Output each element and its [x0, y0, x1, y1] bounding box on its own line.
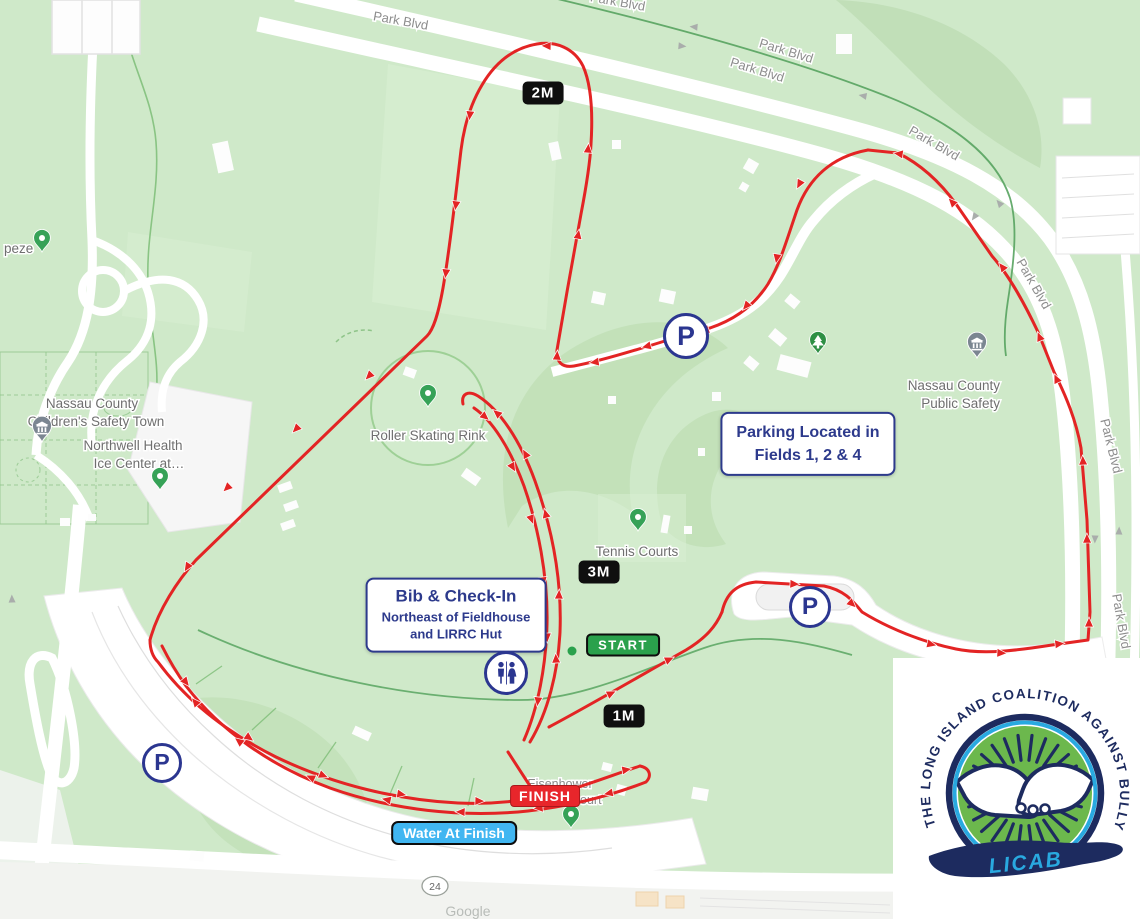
map-label: Google	[445, 903, 490, 919]
map-rect	[608, 396, 616, 404]
map-rect	[784, 293, 800, 309]
map-rect	[212, 141, 234, 174]
map-rect	[768, 328, 787, 347]
map-label: Nassau County	[46, 396, 139, 411]
start-dot	[568, 647, 577, 656]
bib-checkin-line3: and LIRRC Hut	[382, 627, 531, 644]
bib-checkin-line2: Northeast of Fieldhouse	[382, 610, 531, 627]
route-arrow	[793, 178, 806, 191]
map-label: Roller Skating Rink	[371, 428, 486, 443]
green-map-pin	[563, 805, 580, 828]
course-route-line	[508, 752, 530, 786]
map-rect	[88, 514, 96, 521]
mile-marker-2: 2M	[523, 82, 564, 105]
parking-info-box: Parking Located in Fields 1, 2 & 4	[720, 412, 895, 476]
route-arrow	[362, 370, 375, 383]
road-direction-arrow	[8, 594, 15, 602]
tree-map-pin	[810, 331, 827, 354]
map-label: peze	[4, 241, 33, 256]
restrooms-icon	[484, 651, 528, 695]
map-rect	[1063, 98, 1091, 124]
map-rect	[612, 140, 621, 149]
road-direction-arrow	[1115, 526, 1122, 534]
map-rect	[739, 182, 750, 193]
map-label: Park Blvd	[589, 0, 646, 14]
parking-icon: P	[789, 586, 831, 628]
route-arrow	[573, 228, 584, 239]
parking-info-line2: Fields 1, 2 & 4	[736, 444, 879, 467]
mile-marker-3: 3M	[579, 561, 620, 584]
road-direction-arrow	[678, 42, 687, 50]
museum-map-pin	[967, 332, 986, 358]
route-arrow	[289, 423, 302, 436]
map-rect	[461, 468, 481, 487]
parking-icon: P	[142, 743, 182, 783]
route-arrow	[1078, 455, 1088, 465]
map-path	[336, 330, 374, 342]
map-rect	[743, 355, 759, 371]
map-path	[36, 0, 96, 455]
map-rect	[352, 726, 372, 742]
map-rect	[60, 518, 70, 526]
map-rect	[283, 500, 299, 512]
route-arrow	[892, 149, 903, 159]
parking-info-line1: Parking Located in	[736, 421, 879, 444]
map-rect	[1056, 156, 1140, 254]
map-rect	[666, 896, 684, 908]
route-arrow	[554, 589, 563, 599]
map-label: Nassau County	[908, 378, 1001, 393]
bib-checkin-box: Bib & Check-In Northeast of Fieldhouse a…	[366, 578, 547, 653]
road-direction-arrow	[858, 92, 867, 100]
map-circle	[16, 458, 40, 482]
map-rect	[277, 481, 293, 493]
licab-logo: THE LONG ISLAND COALITION AGAINST BULLYI…	[893, 658, 1140, 919]
map-rect	[776, 354, 811, 378]
map-label: Public Safety	[921, 396, 1000, 411]
mile-marker-1: 1M	[604, 705, 645, 728]
map-rect	[636, 892, 658, 906]
map-path	[36, 455, 90, 520]
map-label: Northwell Health	[83, 438, 182, 453]
map-rect	[698, 448, 705, 456]
map-rect	[591, 291, 606, 305]
map-label: Park Blvd	[372, 8, 429, 32]
map-rect	[280, 519, 296, 531]
map-label: Tennis Courts	[596, 544, 679, 559]
map-rect	[659, 289, 676, 305]
water-at-finish-badge: Water At Finish	[391, 821, 517, 845]
map-rect	[836, 34, 852, 54]
route-arrow	[621, 764, 632, 775]
route-arrow	[1082, 533, 1091, 543]
map-label: Ice Center at…	[94, 456, 185, 471]
map-rect	[684, 526, 692, 534]
route-arrow	[533, 696, 543, 707]
route-arrow	[552, 350, 562, 361]
green-map-pin	[34, 229, 51, 252]
restrooms-glyph	[493, 660, 520, 686]
map-rect	[691, 787, 709, 802]
map-path	[118, 0, 157, 396]
parking-icon: P	[663, 313, 709, 359]
map-rect	[743, 158, 759, 174]
map-rect	[601, 762, 613, 772]
map-rect	[712, 392, 721, 401]
map-rect	[52, 0, 140, 54]
road-direction-arrow	[689, 23, 698, 31]
course-map-page: Park BlvdPark BlvdPark BlvdPark BlvdPark…	[0, 0, 1140, 919]
map-label: 24	[429, 881, 441, 893]
licab-logo-box: THE LONG ISLAND COALITION AGAINST BULLYI…	[893, 658, 1140, 919]
map-rect	[190, 850, 205, 861]
finish-badge: FINISH	[510, 785, 580, 807]
route-arrow	[455, 807, 465, 816]
road-direction-arrow	[1091, 535, 1098, 543]
route-arrow	[1085, 617, 1094, 627]
start-badge: START	[586, 634, 660, 657]
bib-checkin-title: Bib & Check-In	[382, 587, 531, 607]
